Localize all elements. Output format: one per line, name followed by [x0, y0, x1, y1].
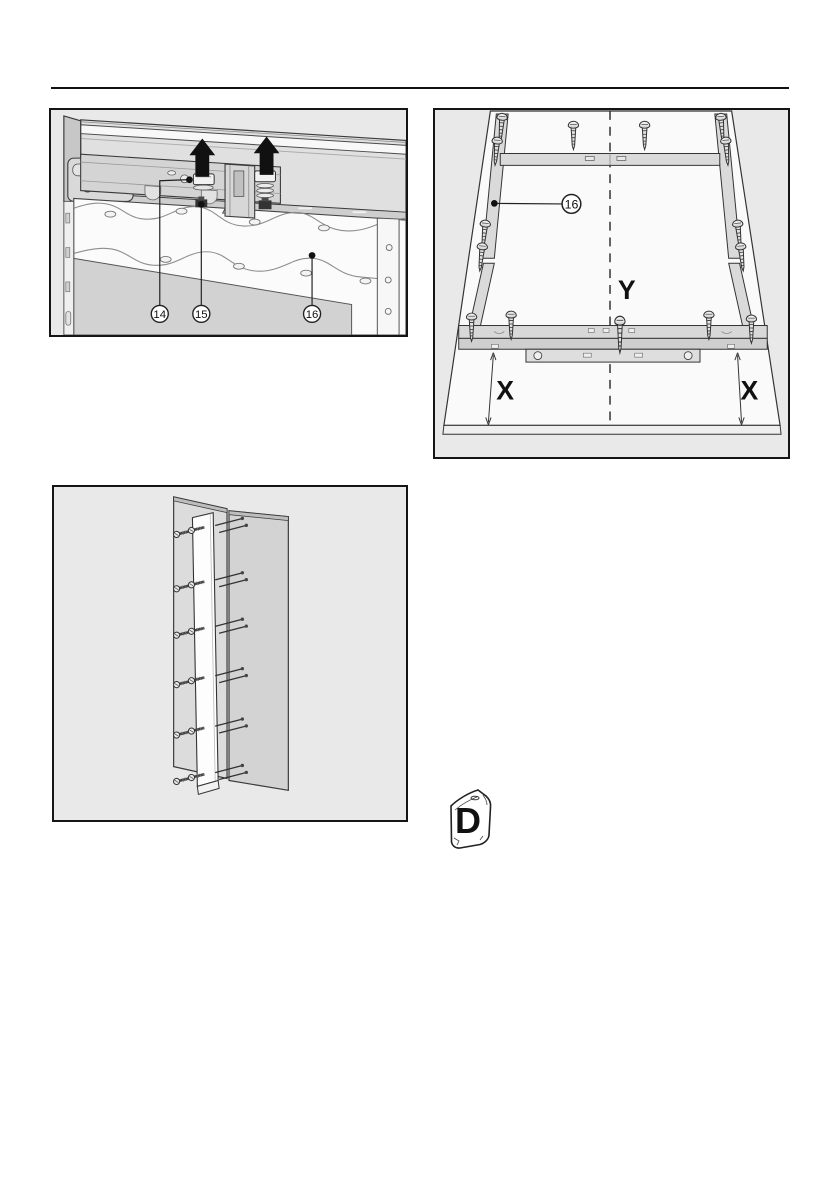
leader-dot-16 — [309, 252, 316, 259]
leader-dot-16 — [491, 200, 498, 207]
leader-dot-15 — [198, 201, 205, 208]
figure-mounting-strip-drawing — [54, 487, 406, 820]
mounting-bracket — [225, 164, 255, 218]
figure-furniture-front: 16 Y X X — [433, 108, 790, 459]
parts-bag-d: D — [447, 788, 494, 850]
callout-14-label: 14 — [153, 309, 166, 321]
callout-16: 16 — [304, 305, 321, 322]
top-cross-rail — [500, 153, 720, 165]
bag-label: D — [455, 800, 481, 841]
dim-label-x-right: X — [741, 376, 759, 406]
callout-16-label: 16 — [306, 309, 319, 321]
callout-15: 15 — [193, 305, 210, 322]
leader-dot-14 — [186, 176, 193, 183]
figure-door-bracket: 14 15 16 — [49, 108, 408, 337]
figure-door-bracket-drawing: 14 15 16 — [51, 110, 406, 335]
dim-label-y: Y — [618, 275, 636, 305]
manual-page: 14 15 16 — [0, 0, 840, 1192]
dim-label-x-left: X — [496, 376, 514, 406]
left-flange — [64, 201, 74, 335]
header-rule — [51, 87, 789, 89]
figure-furniture-front-drawing: 16 Y X X — [435, 110, 788, 457]
parts-bag-icon: D — [447, 788, 494, 850]
figure-mounting-strip — [52, 485, 408, 822]
callout-15-label: 15 — [195, 309, 208, 321]
right-flange — [377, 218, 399, 335]
callout-14: 14 — [151, 305, 168, 322]
callout-16-label: 16 — [565, 197, 579, 211]
callout-16: 16 — [562, 195, 581, 214]
side-panel-right — [229, 511, 288, 791]
